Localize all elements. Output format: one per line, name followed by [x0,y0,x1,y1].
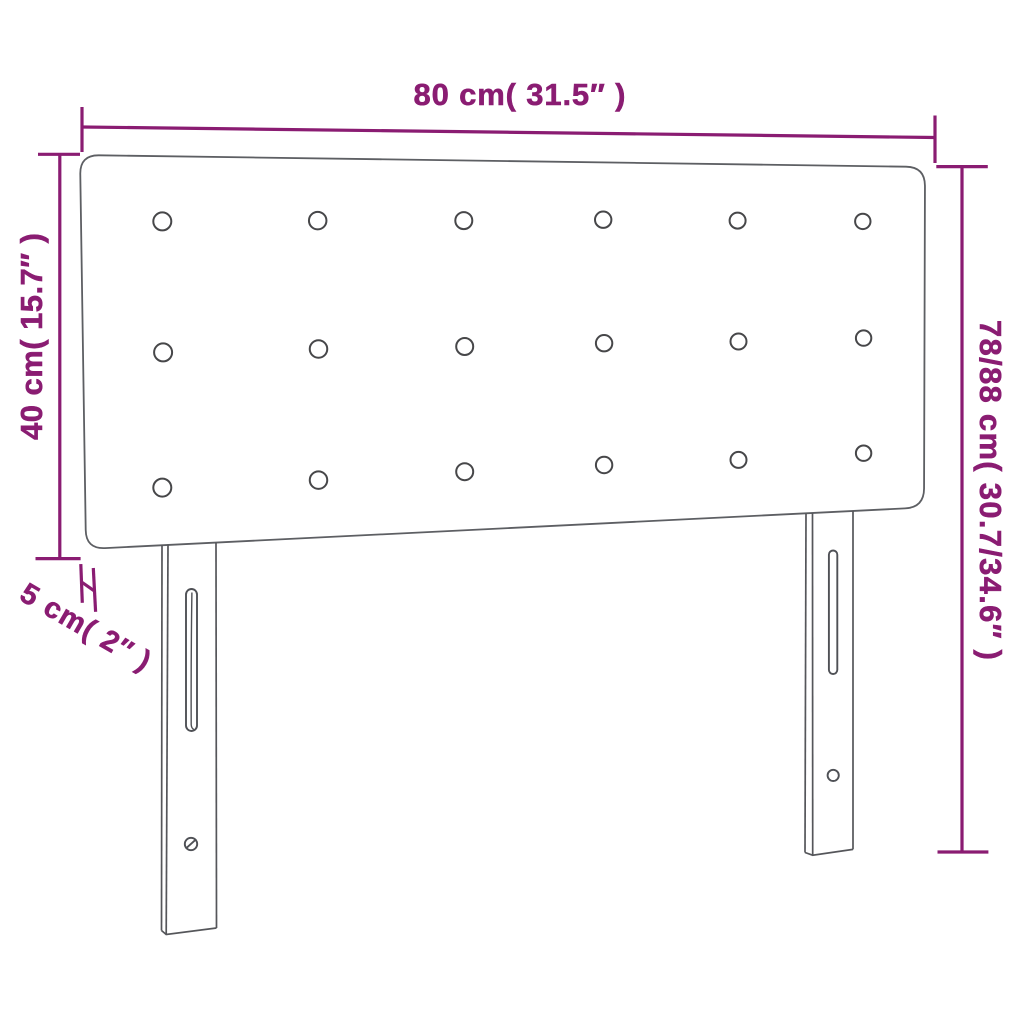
svg-text:40 cm( 15.7″ ): 40 cm( 15.7″ ) [14,233,49,440]
svg-text:80 cm( 31.5″ ): 80 cm( 31.5″ ) [414,77,626,112]
svg-text:78/88 cm( 30.7/34.6″ ): 78/88 cm( 30.7/34.6″ ) [973,320,1008,660]
